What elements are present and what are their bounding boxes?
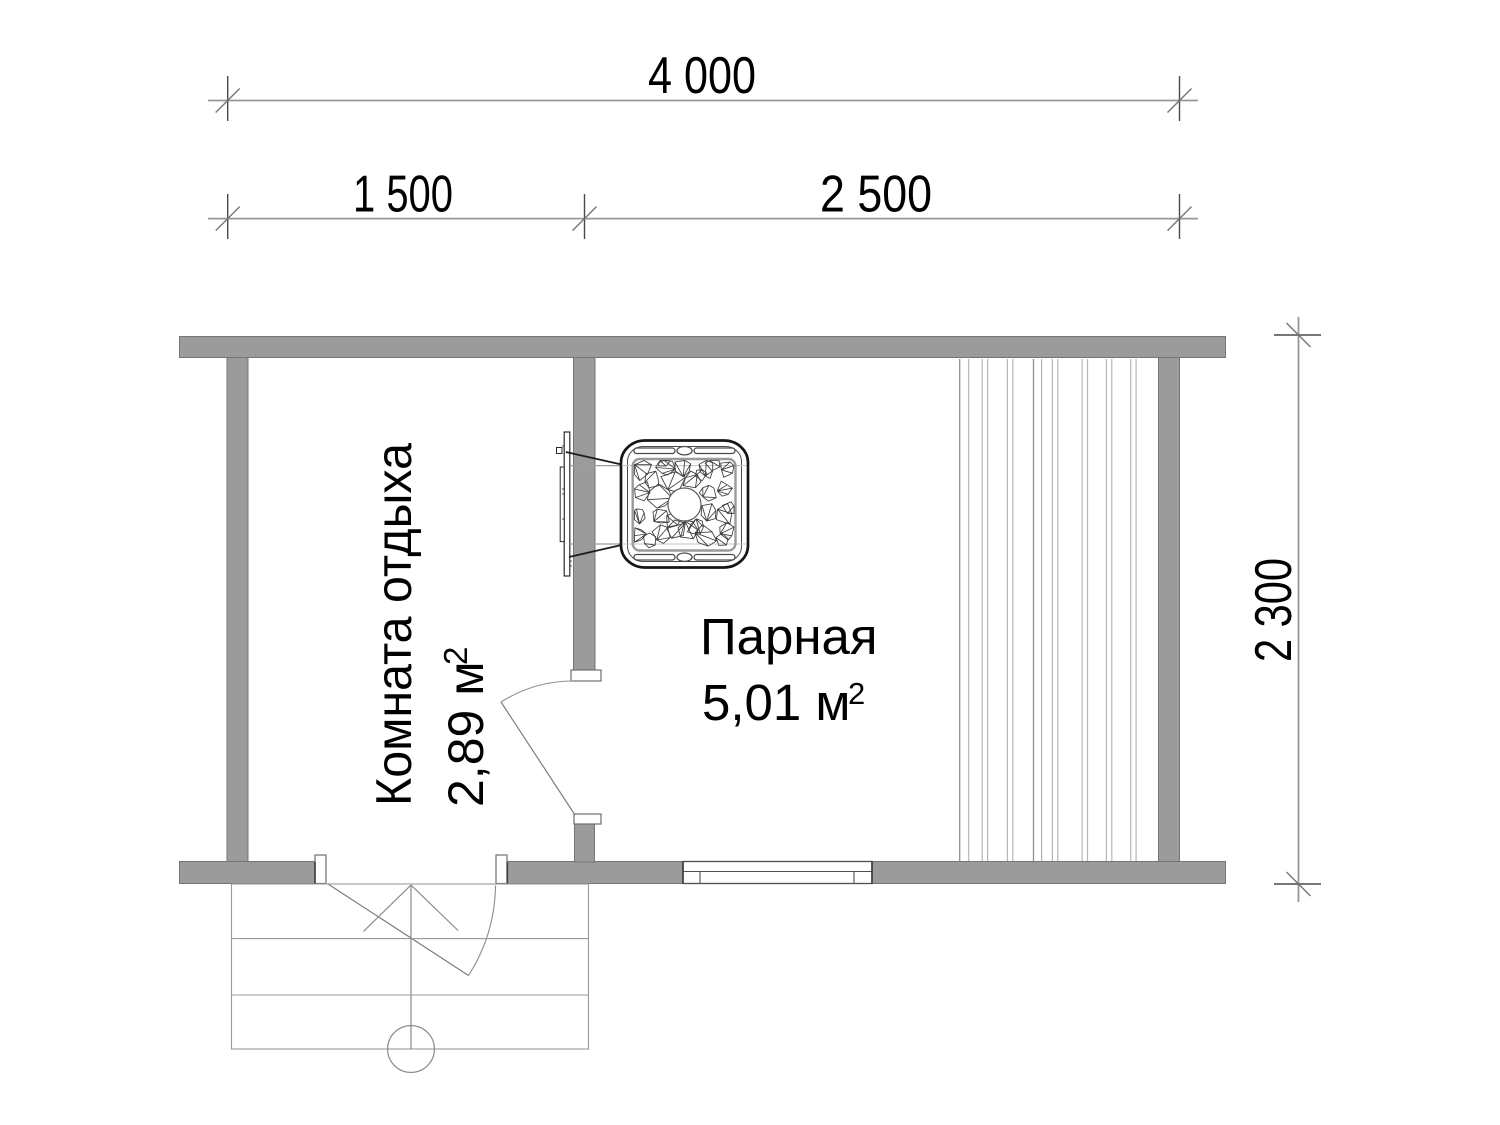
svg-text:5,01 м: 5,01 м — [702, 674, 851, 731]
svg-text:2: 2 — [848, 676, 865, 711]
svg-text:2: 2 — [437, 647, 474, 665]
svg-text:Комната отдыха: Комната отдыха — [366, 443, 422, 806]
svg-text:2 500: 2 500 — [820, 166, 932, 224]
svg-text:4 000: 4 000 — [648, 47, 756, 105]
svg-text:2,89 м: 2,89 м — [438, 661, 494, 807]
svg-text:Парная: Парная — [700, 608, 878, 665]
svg-text:2 300: 2 300 — [1245, 558, 1303, 662]
svg-text:1 500: 1 500 — [353, 166, 453, 224]
